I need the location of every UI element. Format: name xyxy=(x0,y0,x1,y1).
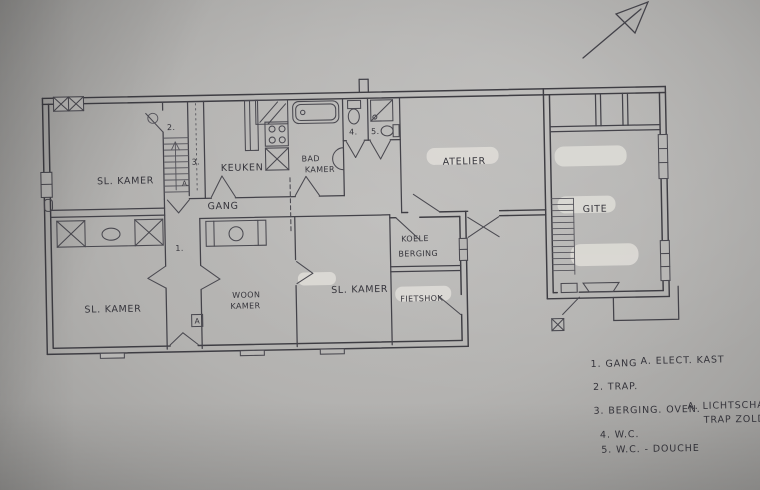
room-labels: SL. KAMER KEUKEN BAD KAMER ATELIER GITE … xyxy=(82,149,610,316)
legend-item-1: 1. GANG xyxy=(591,358,638,370)
radiator-icon xyxy=(44,199,52,211)
chimney-pier xyxy=(244,100,258,150)
marker-1: 1. xyxy=(175,244,184,253)
room-label-sl-kamer-top: SL. KAMER xyxy=(97,175,154,187)
legend-note-1: A. ELECT. KAST xyxy=(640,354,724,367)
window-koele-berging-icon xyxy=(459,238,467,260)
window-left-wall-icon xyxy=(41,172,52,197)
legend-item-3: 3. BERGING. OVEN. xyxy=(593,404,700,417)
room-label-bad-2: KAMER xyxy=(305,165,335,175)
toilet-bowl-icon xyxy=(348,109,359,124)
toilet-tank-icon xyxy=(348,100,361,108)
elektriciteitskast-icon xyxy=(552,318,564,330)
hearth-woonkamer xyxy=(206,220,266,246)
marker-2: 2. xyxy=(167,123,176,132)
marker-a-kast: A xyxy=(195,316,201,325)
legend-note-3a: A. LICHTSCHAKEL xyxy=(687,399,760,412)
room-label-woon-1: WOON xyxy=(232,290,260,300)
legend-item-2: 2. TRAP. xyxy=(593,381,638,393)
marker-5: 5. xyxy=(371,127,380,136)
room-label-atelier: ATELIER xyxy=(443,156,486,168)
kitchen-fixtures xyxy=(244,100,288,171)
closet-bottom-left xyxy=(57,219,163,247)
room-label-keuken: KEUKEN xyxy=(221,162,264,174)
photographed-floorplan-paper: SL. KAMER KEUKEN BAD KAMER ATELIER GITE … xyxy=(0,0,760,490)
toilet-bowl-icon xyxy=(381,126,393,136)
section-line xyxy=(290,178,291,232)
main-staircase xyxy=(148,104,198,195)
room-label-sl-kamer-bottom: SL. KAMER xyxy=(84,304,141,316)
stove-icon xyxy=(265,122,288,146)
legend-item-5: 5. W.C. - DOUCHE xyxy=(601,443,700,456)
room-label-koele-1: KOELE xyxy=(401,234,429,244)
room-label-gite: GITE xyxy=(583,204,608,215)
counter xyxy=(255,100,287,125)
north-arrow-icon xyxy=(583,2,648,58)
door-swings xyxy=(145,105,580,345)
room-label-fietshok: FIETSHOK xyxy=(400,294,443,304)
legend: 1. GANG A. ELECT. KAST 2. TRAP. 3. BERGI… xyxy=(590,353,760,456)
toilet-tank-icon xyxy=(393,125,399,137)
legend-note-3b: TRAP ZOLDER xyxy=(703,413,760,425)
room-label-woon-2: KAMER xyxy=(230,301,260,311)
room-label-bad-1: BAD xyxy=(302,154,320,163)
window-top-left-icon xyxy=(53,97,83,112)
marker-3: 3. xyxy=(192,157,201,166)
room-label-gang: GANG xyxy=(207,201,238,213)
marker-4: 4. xyxy=(349,127,358,136)
marker-a-stairs: A. xyxy=(182,180,189,188)
furniture xyxy=(57,210,620,340)
floorplan-drawing: SL. KAMER KEUKEN BAD KAMER ATELIER GITE … xyxy=(0,0,760,490)
room-label-sl-kamer-mid: SL. KAMER xyxy=(331,284,388,296)
legend-item-4: 4. W.C. xyxy=(600,429,640,441)
window-sills-bottom xyxy=(100,349,344,359)
room-label-koele-2: BERGING xyxy=(398,249,438,259)
